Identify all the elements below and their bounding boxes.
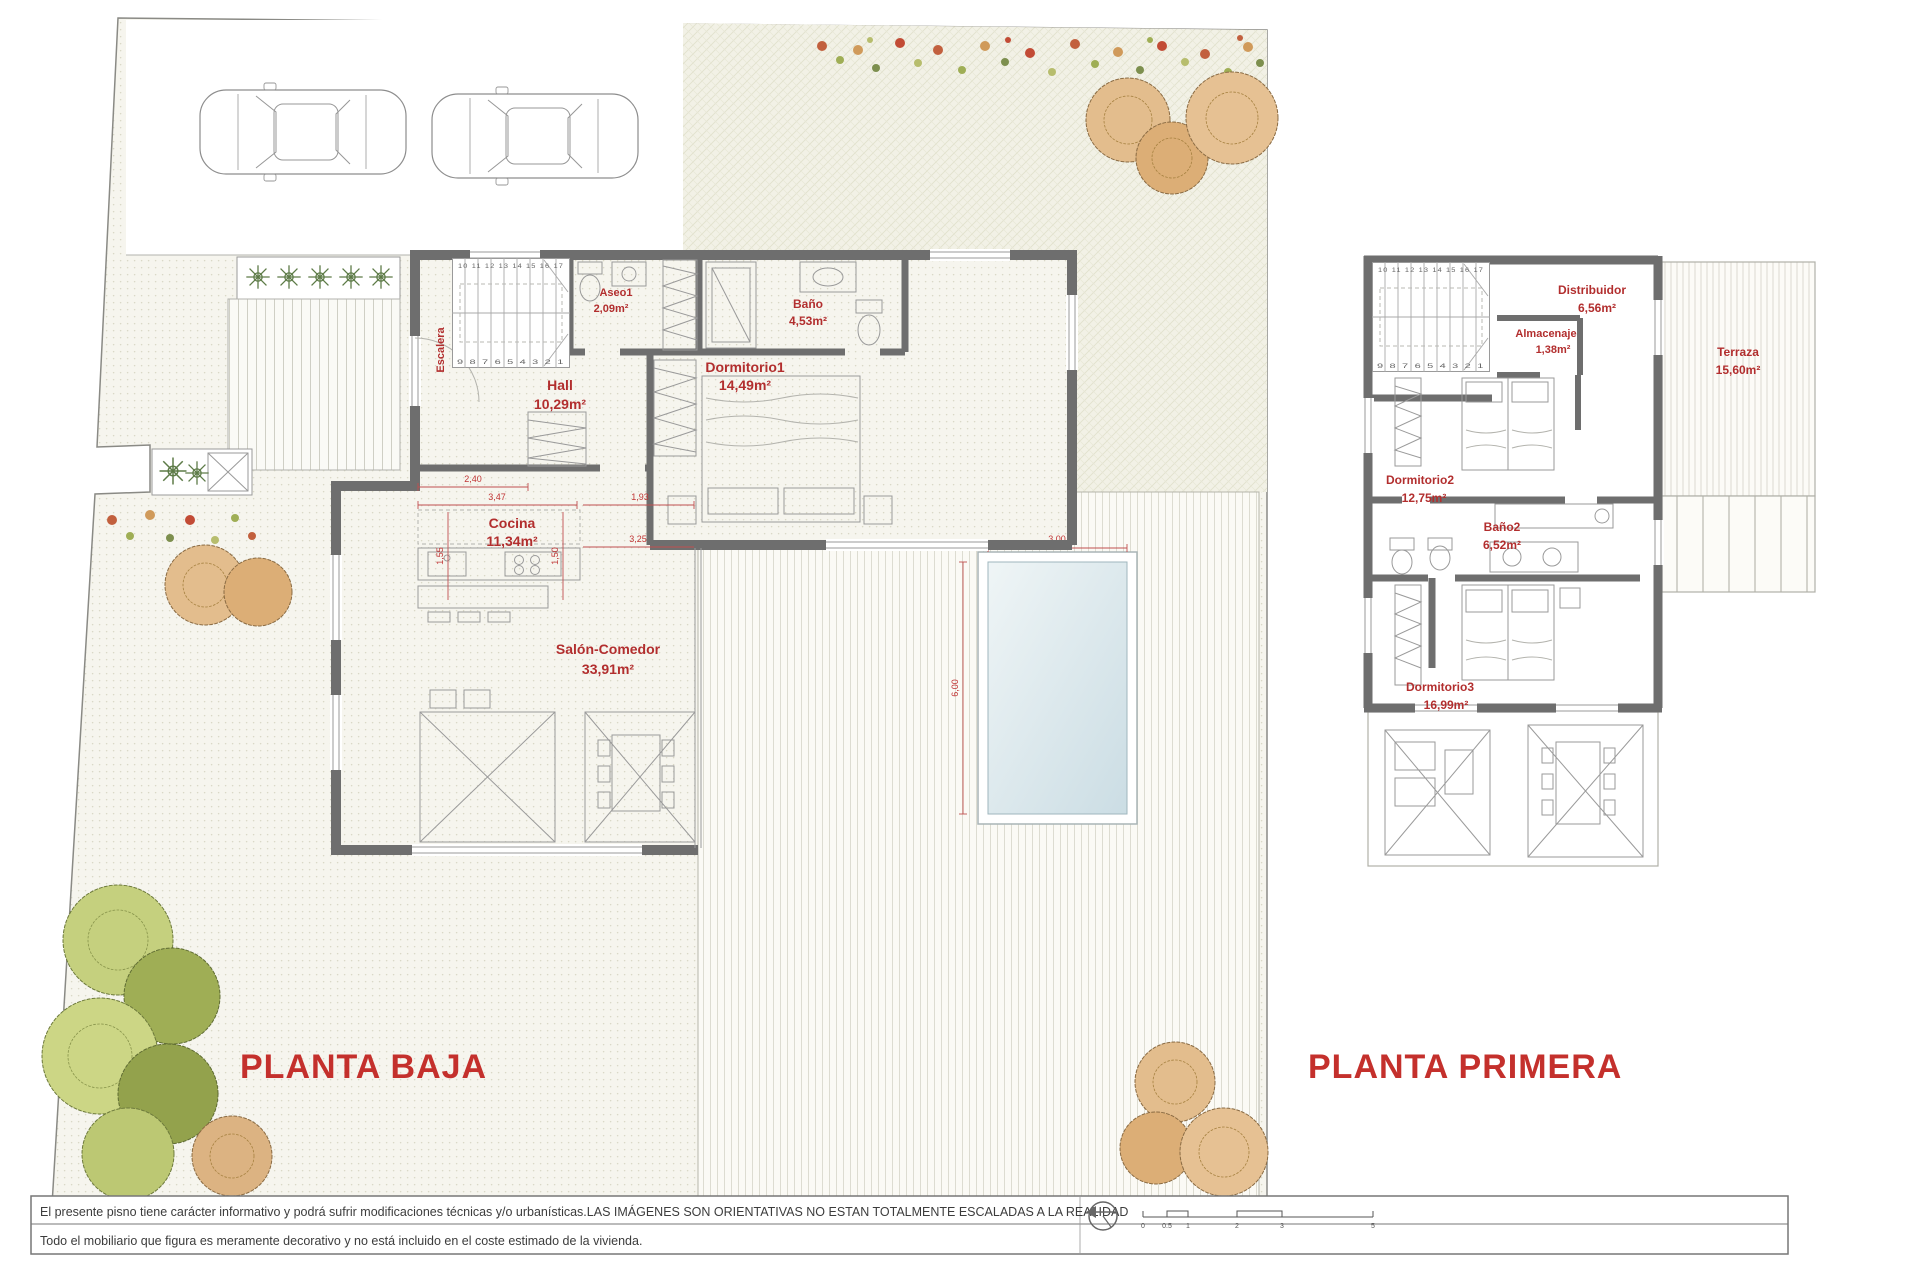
room-area-almacenaje: 1,38m² bbox=[1536, 344, 1571, 356]
staircase-first: 10 11 12 13 14 15 16 17 9 8 7 6 5 4 3 2 … bbox=[1372, 262, 1490, 372]
room-area-salon: 33,91m² bbox=[582, 661, 634, 677]
footer-disclaimer-line2: Todo el mobiliario que figura es meramen… bbox=[40, 1234, 642, 1248]
scale-tick-2: 2 bbox=[1235, 1223, 1239, 1230]
room-area-dormitorio1: 14,49m² bbox=[719, 377, 771, 393]
dim-240: 2,40 bbox=[464, 474, 482, 484]
room-dormitorio3: Dormitorio3 16,99m² bbox=[1395, 585, 1580, 712]
room-area-dormitorio2: 12,75m² bbox=[1402, 491, 1447, 505]
gate-utility-box bbox=[152, 449, 252, 495]
footer-disclaimer-line1: El presente pisno tiene carácter informa… bbox=[40, 1204, 1128, 1219]
room-area-bano2: 6,52m² bbox=[1483, 538, 1521, 552]
pool-height-dim: 6,00 bbox=[950, 679, 960, 697]
first-floor-title: PLANTA PRIMERA bbox=[1308, 1048, 1622, 1086]
ground-floor-title: PLANTA BAJA bbox=[240, 1048, 487, 1086]
scale-tick-0: 0 bbox=[1141, 1223, 1145, 1230]
room-area-aseo1: 2,09m² bbox=[594, 303, 629, 315]
dim-193: 1,93 bbox=[631, 492, 649, 502]
scale-tick-1: 1 bbox=[1186, 1223, 1190, 1230]
room-label-bano2: Baño2 bbox=[1484, 520, 1521, 534]
room-label-escalera: Escalera bbox=[435, 326, 447, 372]
room-label-distribuidor: Distribuidor bbox=[1558, 283, 1626, 297]
room-area-hall: 10,29m² bbox=[534, 396, 586, 412]
floorplan-canvas: 3,00 6,00 bbox=[0, 0, 1920, 1280]
room-label-cocina: Cocina bbox=[489, 515, 536, 531]
entry-walkway bbox=[228, 299, 400, 470]
stair-numbers-top-first: 10 11 12 13 14 15 16 17 bbox=[1378, 267, 1484, 274]
room-area-distribuidor: 6,56m² bbox=[1578, 301, 1616, 315]
room-label-almacenaje: Almacenaje bbox=[1515, 328, 1576, 340]
room-label-bano: Baño bbox=[793, 297, 823, 311]
room-area-bano: 4,53m² bbox=[789, 314, 827, 328]
room-label-salon: Salón-Comedor bbox=[556, 641, 661, 657]
stair-numbers-top: 10 11 12 13 14 15 16 17 bbox=[458, 263, 564, 270]
dim-325: 3,25 bbox=[629, 534, 647, 544]
room-area-cocina: 11,34m² bbox=[486, 533, 538, 549]
room-label-dormitorio1: Dormitorio1 bbox=[705, 359, 785, 375]
room-label-dormitorio2: Dormitorio2 bbox=[1386, 473, 1454, 487]
first-floor-plan: Terraza 15,60m² 10 11 12 bbox=[1308, 256, 1815, 1086]
footer: El presente pisno tiene carácter informa… bbox=[31, 1196, 1788, 1254]
scale-tick-5: 5 bbox=[1371, 1223, 1375, 1230]
terraza-pergola bbox=[1662, 496, 1815, 592]
swimming-pool bbox=[978, 552, 1137, 824]
ground-floor-plan: 3,00 6,00 bbox=[42, 18, 1278, 1205]
dim-150: 1,50 bbox=[550, 547, 560, 565]
room-label-dormitorio3: Dormitorio3 bbox=[1406, 680, 1474, 694]
scale-tick-3: 3 bbox=[1280, 1223, 1284, 1230]
stair-numbers-bottom-first: 9 8 7 6 5 4 3 2 1 bbox=[1377, 363, 1485, 370]
parking-area bbox=[126, 20, 683, 255]
stair-numbers-bottom: 9 8 7 6 5 4 3 2 1 bbox=[457, 359, 565, 366]
room-label-terraza: Terraza bbox=[1717, 345, 1759, 359]
staircase-ground: 10 11 12 13 14 15 16 17 9 8 7 6 5 4 3 2 … bbox=[435, 258, 570, 373]
dim-347: 3,47 bbox=[488, 492, 506, 502]
room-bano2: Baño2 6,52m² bbox=[1390, 504, 1613, 574]
room-label-hall: Hall bbox=[547, 377, 573, 393]
terraza-area bbox=[1662, 262, 1815, 496]
room-label-aseo1: Aseo1 bbox=[599, 287, 632, 299]
scale-tick-05: 0.5 bbox=[1162, 1223, 1172, 1230]
room-area-dormitorio3: 16,99m² bbox=[1424, 698, 1469, 712]
dim-155: 1,55 bbox=[435, 547, 445, 565]
room-area-terraza: 15,60m² bbox=[1716, 363, 1761, 377]
floor-plan-page: 3,00 6,00 bbox=[0, 0, 1920, 1280]
